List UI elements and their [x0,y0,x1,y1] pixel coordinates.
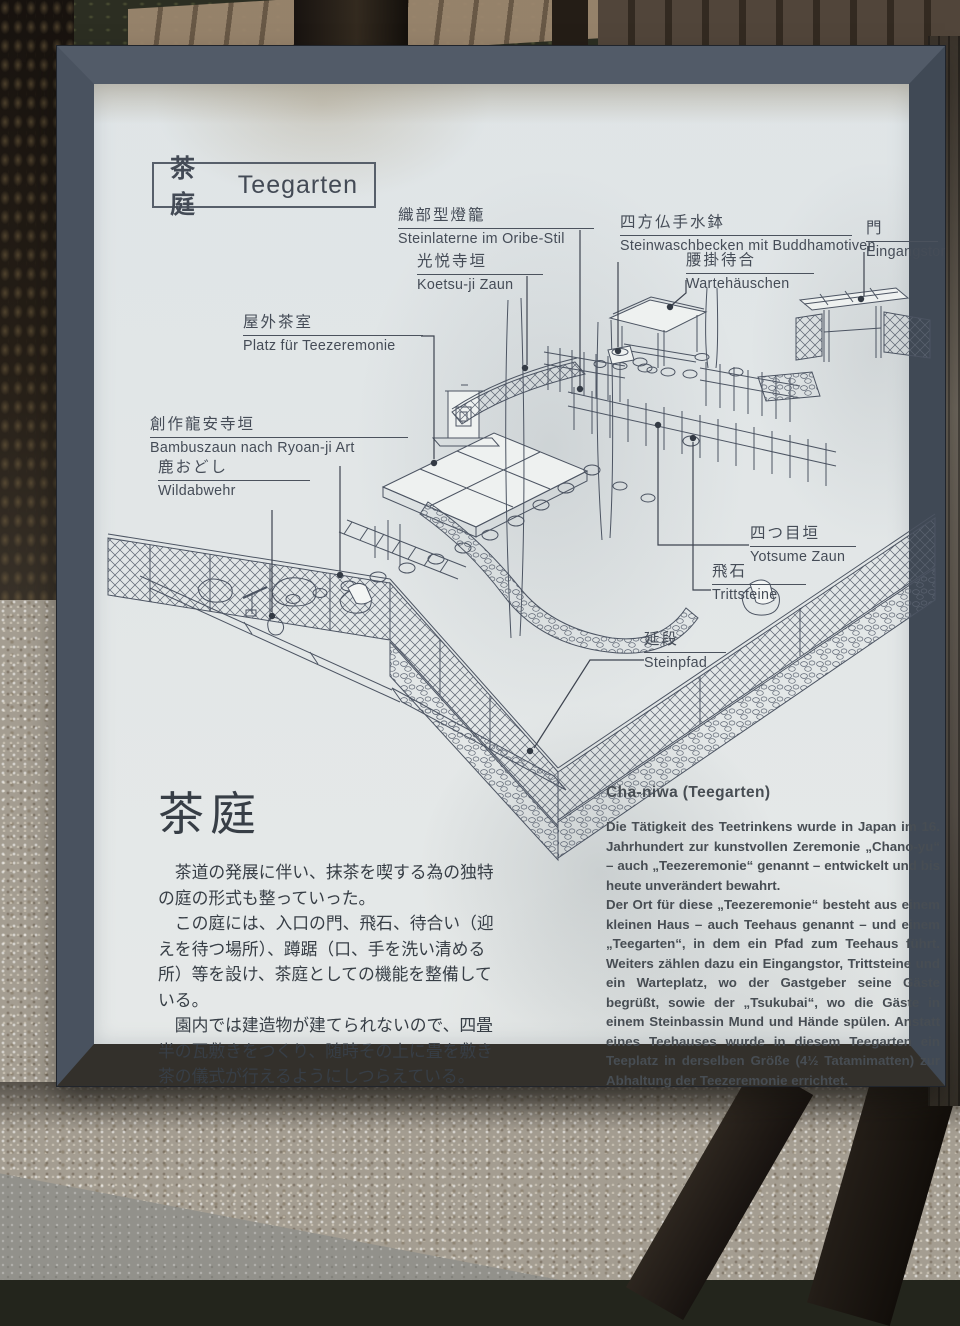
label-jp: 門 [866,220,938,242]
title-german: Teegarten [238,171,358,200]
label-jp: 腰掛待合 [686,252,814,274]
label-de: Koetsu-ji Zaun [417,275,543,294]
label-jp: 四つ目垣 [750,525,856,547]
label-de: Eingangstor [866,242,938,261]
label-de: Steinpfad [644,653,726,672]
label-de: Platz für Teezeremonie [243,336,423,355]
diagram-label-koetsuji: 光悦寺垣 Koetsu-ji Zaun [417,253,543,294]
german-heading: Cha-niwa (Teegarten) [606,784,940,802]
german-paragraph: Der Ort für diese „Teezeremonie“ besteht… [606,895,940,1090]
label-jp: 光悦寺垣 [417,253,543,275]
label-jp: 創作龍安寺垣 [150,416,408,438]
diagram-label-bambuszaun: 創作龍安寺垣 Bambuszaun nach Ryoan-ji Art [150,416,408,457]
label-de: Wildabwehr [158,481,310,500]
japanese-paragraph: 園内では建造物が建てられないので、四畳半の瓦敷きをつくり、随時その上に畳を敷き茶… [158,1013,494,1090]
german-description-section: Cha-niwa (Teegarten) Die Tätigkeit des T… [606,784,940,1090]
label-jp: 屋外茶室 [243,314,423,336]
label-de: Bambuszaun nach Ryoan-ji Art [150,438,408,457]
label-jp: 飛石 [712,563,806,585]
japanese-heading: 茶庭 [158,778,494,844]
label-jp: 延段 [644,631,726,653]
diagram-label-teeplatz: 屋外茶室 Platz für Teezeremonie [243,314,423,355]
diagram-label-wartehaus: 腰掛待合 Wartehäuschen [686,252,814,293]
japanese-description-section: 茶庭 茶道の発展に伴い、抹茶を喫する為の独特の庭の形式も整っていった。 この庭に… [158,778,494,1090]
title-box: 茶庭 Teegarten [152,162,376,208]
diagram-label-yotsume: 四つ目垣 Yotsume Zaun [750,525,856,566]
diagram-label-basin: 四方仏手水鉢 Steinwaschbecken mit Buddhamotive… [620,214,852,255]
label-jp: 織部型燈籠 [398,207,594,229]
photo-of-tea-garden-sign: 茶庭 Teegarten 織部型燈籠 Steinlaterne im Oribe… [0,0,960,1280]
title-japanese: 茶庭 [170,149,216,221]
label-de: Steinlaterne im Oribe-Stil [398,229,594,248]
japanese-paragraph: 茶道の発展に伴い、抹茶を喫する為の独特の庭の形式も整っていった。 [158,860,494,911]
diagram-label-trittsteine: 飛石 Trittsteine [712,563,806,604]
label-de: Trittsteine [712,585,806,604]
german-paragraph: Die Tätigkeit des Teetrinkens wurde in J… [606,817,940,895]
japanese-paragraph: この庭には、入口の門、飛石、待合い（迎えを待つ場所）、蹲踞（口、手を洗い清める所… [158,911,494,1013]
label-jp: 鹿おどし [158,459,310,481]
diagram-label-wildabwehr: 鹿おどし Wildabwehr [158,459,310,500]
label-de: Wartehäuschen [686,274,814,293]
diagram-label-steinpfad: 延段 Steinpfad [644,631,726,672]
diagram-label-tor: 門 Eingangstor [866,220,938,261]
diagram-label-steinlaterne: 織部型燈籠 Steinlaterne im Oribe-Stil [398,207,594,248]
label-jp: 四方仏手水鉢 [620,214,852,236]
